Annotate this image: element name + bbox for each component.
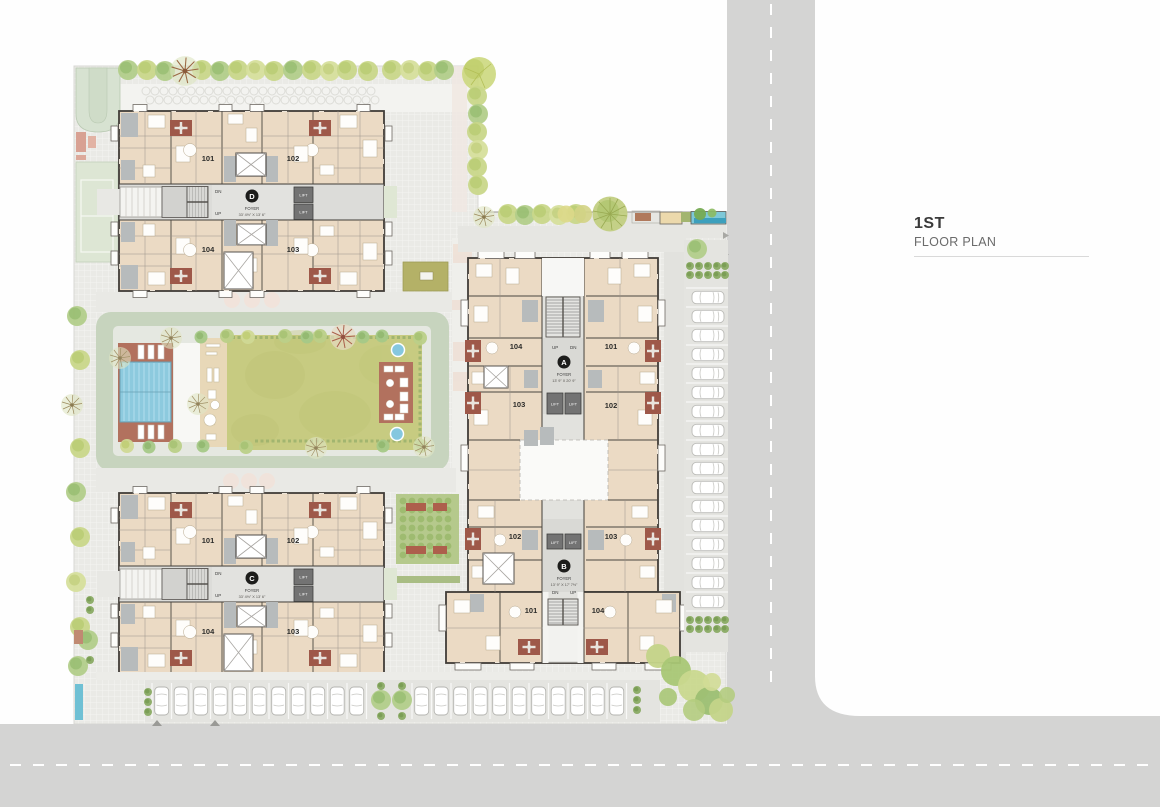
svg-text:A: A (561, 358, 567, 367)
svg-text:FOYER: FOYER (557, 372, 571, 377)
svg-text:1ST: 1ST (914, 215, 945, 232)
svg-text:103: 103 (513, 400, 526, 409)
svg-text:33' 4½" X 13' 6": 33' 4½" X 13' 6" (239, 213, 266, 217)
svg-text:B: B (561, 562, 567, 571)
svg-text:LIFT: LIFT (569, 402, 578, 407)
svg-text:102: 102 (509, 532, 522, 541)
svg-text:LIFT: LIFT (551, 540, 560, 545)
svg-text:101: 101 (605, 342, 618, 351)
svg-text:104: 104 (202, 245, 215, 254)
svg-text:102: 102 (287, 154, 300, 163)
svg-text:13' 9" X 20' 9": 13' 9" X 20' 9" (552, 379, 576, 383)
svg-text:103: 103 (605, 532, 618, 541)
svg-text:33' 4½" X 13' 6": 33' 4½" X 13' 6" (239, 595, 266, 599)
svg-text:DN: DN (552, 590, 559, 595)
svg-text:UP: UP (570, 590, 576, 595)
svg-text:104: 104 (202, 627, 215, 636)
svg-text:101: 101 (202, 536, 215, 545)
svg-text:102: 102 (287, 536, 300, 545)
svg-text:D: D (249, 192, 255, 201)
svg-text:104: 104 (510, 342, 523, 351)
svg-text:103: 103 (287, 627, 300, 636)
svg-text:102: 102 (605, 401, 618, 410)
svg-text:C: C (249, 574, 255, 583)
svg-text:104: 104 (592, 606, 605, 615)
svg-text:FOYER: FOYER (557, 576, 571, 581)
svg-text:DN: DN (570, 345, 577, 350)
svg-text:101: 101 (202, 154, 215, 163)
svg-text:UP: UP (552, 345, 558, 350)
svg-text:LIFT: LIFT (569, 540, 578, 545)
svg-text:LIFT: LIFT (551, 402, 560, 407)
svg-text:FOYER: FOYER (245, 588, 259, 593)
svg-text:103: 103 (287, 245, 300, 254)
svg-text:FLOOR PLAN: FLOOR PLAN (914, 235, 996, 249)
svg-text:13' 9" X 17' 7½": 13' 9" X 17' 7½" (551, 583, 578, 587)
svg-text:101: 101 (525, 606, 538, 615)
svg-text:FOYER: FOYER (245, 206, 259, 211)
